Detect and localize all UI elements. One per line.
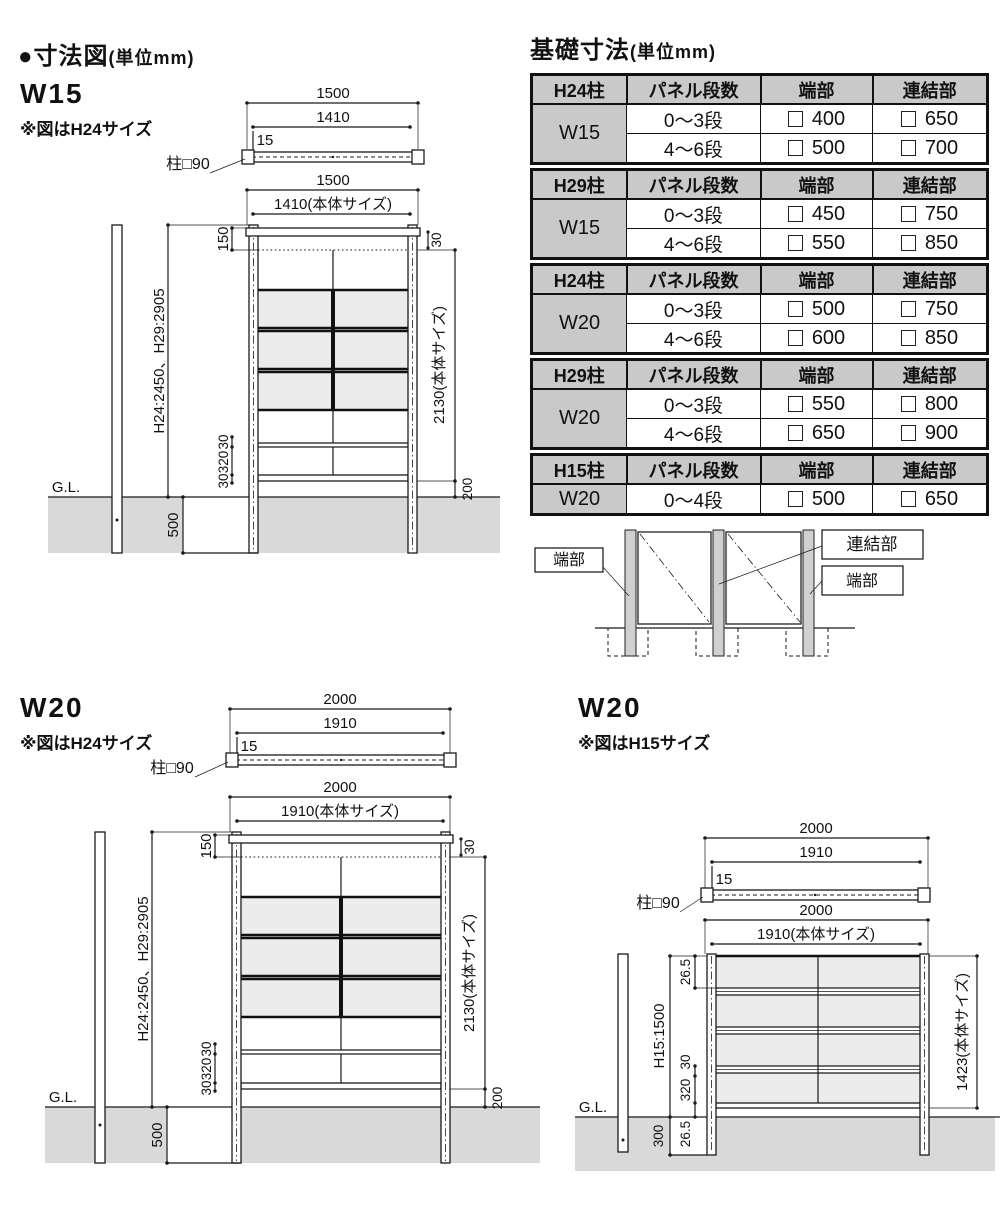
bottom-rail [241,1083,441,1089]
ren-cell: 750 [873,199,988,229]
ren-header: 連結部 [873,75,988,105]
left-title-main: ●寸法図 [18,43,109,70]
tan-cell: 650 [761,419,873,449]
tan-value: 500 [812,298,845,320]
post-plan-left [242,150,254,164]
legend-middle-label: 連結部 [847,535,898,554]
ren-cell: 650 [873,484,988,515]
ren-cell: 700 [873,134,988,164]
dan-cell: 0～4段 [627,484,761,515]
w20h24-elevation: 2000 1910(本体サイズ) 150 30 [45,779,540,1165]
w20h15-top-gap-dim: 26.5 [678,959,693,985]
ren-cell: 650 [873,104,988,134]
tan-cell: 500 [761,134,873,164]
post-header: H15柱 [532,455,627,485]
checkbox-icon [901,396,916,412]
w20h24-drawing: 2000 1910 15 柱□90 2000 1910(本体サイズ) [30,695,540,1180]
fence-panel [726,532,801,624]
checkbox-icon [788,235,803,251]
ground [575,1117,995,1171]
dan-cell: 4～6段 [627,419,761,449]
adjacent-post [112,225,122,553]
w20h24-plan-body-dim: 1910 [323,715,356,732]
checkbox-icon [901,235,916,251]
top-rail [246,228,420,236]
ren-value: 850 [925,232,958,254]
w15-post-height-dim: H24:2450、H29:2905 [151,288,168,433]
post-header: H29柱 [532,360,627,390]
ren-value: 900 [925,422,958,444]
size-cell: W15 [532,199,627,259]
w20h15-embed-dim: 300 [651,1125,666,1148]
ren-value: 700 [925,137,958,159]
ren-value: 650 [925,108,958,130]
w15-post-size-label: 柱□90 [166,155,210,173]
w15-rail-gap-dim: 320 [216,451,231,474]
dan-cell: 4～6段 [627,134,761,164]
w15-elevation: 1500 1410(本体サイズ) 150 30 [48,172,500,555]
w20h15-plan-view: 2000 1910 15 柱□90 [636,820,930,912]
legend-left-label: 端部 [553,551,585,569]
ren-cell: 800 [873,389,988,419]
w15-body-height-dim: 2130(本体サイズ) [431,306,448,424]
post-header: H24柱 [532,75,627,105]
dan-header: パネル段数 [627,360,761,390]
dan-cell: 0～3段 [627,199,761,229]
checkbox-icon [901,425,916,441]
spec-table-h29-w20: H29柱パネル段数端部連結部 W200～3段550800 4～6段650900 [530,358,989,450]
checkbox-icon [788,330,803,346]
w15-plan-body-dim: 1410 [316,109,349,126]
w15-rail-top-dim: 30 [216,434,231,449]
dan-cell: 4～6段 [627,229,761,259]
w20h15-plan-body-dim: 1910 [799,844,832,861]
ground [45,1107,540,1163]
tan-header: 端部 [761,170,873,200]
ren-header: 連結部 [873,265,988,295]
spec-table-h24-w20: H24柱パネル段数端部連結部 W200～3段500750 4～6段600850 [530,263,989,355]
w20h15-elev-overall-dim: 2000 [799,902,832,919]
checkbox-icon [788,140,803,156]
ren-header: 連結部 [873,455,988,485]
w20h15-elevation: 2000 1910(本体サイズ) 26.5 H15:1500 [575,902,1000,1171]
dan-cell: 0～3段 [627,104,761,134]
spec-table-h24-w15: H24柱パネル段数端部連結部 W150～3段400650 4～6段500700 [530,73,989,165]
post-plan-left [701,888,713,902]
tan-header: 端部 [761,265,873,295]
checkbox-icon [901,330,916,346]
ren-value: 650 [925,488,958,510]
w20h24-rail-top-dim: 30 [199,1041,214,1056]
legend-drawing: 端部 連結部 端部 [525,520,1000,680]
tan-header: 端部 [761,75,873,105]
ren-cell: 850 [873,324,988,354]
checkbox-icon [901,206,916,222]
w20h24-body-height-dim: 2130(本体サイズ) [461,914,478,1032]
tan-cell: 500 [761,294,873,324]
checkbox-icon [901,111,916,127]
tan-cell: 450 [761,199,873,229]
w15-elev-overall-dim: 1500 [316,172,349,189]
w20h24-plan-offset-dim: 15 [241,738,258,755]
tan-header: 端部 [761,360,873,390]
dan-header: パネル段数 [627,455,761,485]
tan-header: 端部 [761,455,873,485]
dan-cell: 0～3段 [627,294,761,324]
ren-header: 連結部 [873,170,988,200]
tan-cell: 550 [761,389,873,419]
spec-table-h15-w20: H15柱パネル段数端部連結部 W200～4段500650 [530,453,989,516]
w20h15-rail-gap-dim: 320 [678,1079,693,1102]
joint-post [713,530,724,656]
size-cell: W15 [532,104,627,164]
w20h24-elev-overall-dim: 2000 [323,779,356,796]
tan-cell: 400 [761,104,873,134]
tan-value: 500 [812,137,845,159]
w15-clearance-dim: 200 [460,478,475,501]
w20h24-embed-dim: 500 [149,1122,166,1147]
legend-right-label: 端部 [846,572,878,590]
post-plan-right [444,753,456,767]
checkbox-icon [788,206,803,222]
ren-value: 750 [925,298,958,320]
tan-value: 650 [812,422,845,444]
size-cell: W20 [532,484,627,515]
ren-cell: 900 [873,419,988,449]
tan-cell: 600 [761,324,873,354]
w15-embed-dim: 500 [165,512,182,537]
size-cell: W20 [532,389,627,449]
checkbox-icon [788,491,803,507]
tan-value: 550 [812,393,845,415]
w15-rail-bot-dim: 30 [216,473,231,488]
w20h24-rail-gap-dim: 320 [199,1058,214,1081]
spec-table-h29-w15: H29柱パネル段数端部連結部 W150～3段450750 4～6段550850 [530,168,989,260]
w15-elev-body-dim: 1410(本体サイズ) [274,196,392,213]
w20h24-elev-body-dim: 1910(本体サイズ) [281,803,399,820]
bottom-rail [716,1103,920,1108]
checkbox-icon [788,301,803,317]
checkbox-icon [788,425,803,441]
w15-drawing: 1500 1410 15 柱□90 1500 1410(本体サイズ) [30,85,500,560]
w20h24-plan-overall-dim: 2000 [323,691,356,708]
w20h15-rail-top-dim: 30 [678,1054,693,1069]
dan-cell: 0～3段 [627,389,761,419]
ren-value: 750 [925,203,958,225]
end-post [803,530,814,656]
w20h24-rail-bot-dim: 30 [199,1080,214,1095]
ren-value: 850 [925,327,958,349]
dan-cell: 4～6段 [627,324,761,354]
w15-plan-overall-dim: 1500 [316,85,349,102]
w15-plan-offset-dim: 15 [257,132,274,149]
w15-top-gap-dim: 150 [215,226,232,251]
left-title-unit: (単位mm) [109,48,195,68]
adjacent-post [95,832,105,1163]
checkbox-icon [901,301,916,317]
adjacent-post [618,954,628,1152]
w20h24-top-gap-dim: 150 [198,833,215,858]
w20h24-clearance-dim: 200 [490,1087,505,1110]
post-plan-right [918,888,930,902]
w20h15-plan-offset-dim: 15 [716,871,733,888]
w20h24-gl-label: G.L. [49,1089,77,1106]
dan-header: パネル段数 [627,265,761,295]
tan-cell: 550 [761,229,873,259]
w15-gl-label: G.L. [52,479,80,496]
tan-value: 600 [812,327,845,349]
right-section-title: 基礎寸法(単位mm) [530,30,716,65]
dan-header: パネル段数 [627,170,761,200]
right-title-main: 基礎寸法 [530,37,630,64]
top-rail [229,835,453,843]
post-header: H29柱 [532,170,627,200]
dan-header: パネル段数 [627,75,761,105]
tan-value: 550 [812,232,845,254]
w20h15-rail-bot-dim: 26.5 [678,1121,693,1147]
post-plan-left [226,753,238,767]
checkbox-icon [788,111,803,127]
w20h24-top-offset-dim: 30 [462,839,477,854]
w20h24-post-size-label: 柱□90 [150,759,194,777]
post-plan-right [412,150,424,164]
left-section-title: ●寸法図(単位mm) [18,36,195,71]
w15-plan-view: 1500 1410 15 柱□90 [166,85,424,173]
tan-cell: 500 [761,484,873,515]
checkbox-icon [788,396,803,412]
w20h15-drawing: 2000 1910 15 柱□90 2000 1910(本体サイズ) [560,690,1000,1190]
tan-value: 400 [812,108,845,130]
ren-cell: 850 [873,229,988,259]
w20h15-gl-label: G.L. [579,1099,607,1116]
w20h15-post-height-dim: H15:1500 [651,1003,668,1068]
ren-cell: 750 [873,294,988,324]
w20h15-plan-overall-dim: 2000 [799,820,832,837]
w20h24-post-height-dim: H24:2450、H29:2905 [135,896,152,1041]
ren-value: 800 [925,393,958,415]
right-title-unit: (単位mm) [630,42,716,62]
tan-value: 500 [812,488,845,510]
tan-value: 450 [812,203,845,225]
checkbox-icon [901,491,916,507]
w15-top-offset-dim: 30 [429,232,444,247]
size-cell: W20 [532,294,627,354]
w20h15-elev-body-dim: 1910(本体サイズ) [757,926,875,943]
w20h15-post-size-label: 柱□90 [636,894,680,912]
post-header: H24柱 [532,265,627,295]
ren-header: 連結部 [873,360,988,390]
w20h24-plan-view: 2000 1910 15 柱□90 [150,691,456,777]
bottom-rail [258,475,408,481]
w20h15-body-height-dim: 1423(本体サイズ) [954,973,971,1091]
spec-sheet: ●寸法図(単位mm) 基礎寸法(単位mm) W15 ※図はH24サイズ W20 … [0,0,1000,1209]
checkbox-icon [901,140,916,156]
